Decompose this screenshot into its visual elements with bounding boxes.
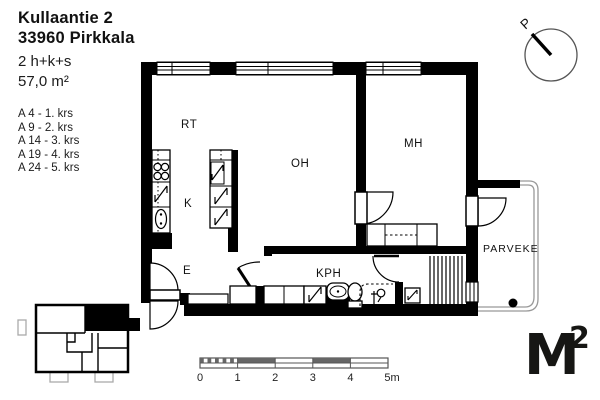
bedroom-door xyxy=(355,192,393,224)
room-label-rt: RT xyxy=(181,119,197,131)
location-keymap xyxy=(18,305,140,382)
shower xyxy=(360,284,393,306)
compass: P xyxy=(517,15,577,81)
m2-logo: M 2 xyxy=(524,326,596,392)
bathroom-cabinets xyxy=(264,286,326,304)
sauna-stove xyxy=(405,288,420,303)
scale-tick: 0 xyxy=(197,372,203,384)
scale-tick: 5m xyxy=(384,372,399,384)
sauna-window xyxy=(466,282,478,302)
north-needle xyxy=(532,34,551,55)
scale-tick: 4 xyxy=(347,372,353,384)
bedroom-wardrobes xyxy=(367,224,437,246)
room-label-parveke: PARVEKE xyxy=(483,243,539,255)
room-label-kph: KPH xyxy=(316,268,341,280)
room-label-mh: MH xyxy=(404,138,423,150)
floor-plan-drawing: RT K OH MH E KPH PARVEKE P xyxy=(0,0,600,400)
washbasin xyxy=(327,283,349,300)
scale-tick: 3 xyxy=(310,372,316,384)
balcony-door xyxy=(466,196,506,226)
room-label-oh: OH xyxy=(291,158,309,170)
room-label-e: E xyxy=(183,265,191,277)
hall-bench xyxy=(188,294,228,304)
front-door xyxy=(150,263,180,329)
scale-tick: 1 xyxy=(235,372,241,384)
north-label: P xyxy=(517,15,534,32)
logo-sup: 2 xyxy=(569,324,590,354)
keymap-highlighted-apartment xyxy=(85,305,140,331)
room-label-k: K xyxy=(184,198,192,210)
balcony-drain xyxy=(509,299,518,308)
scale-bar: 0 1 2 3 4 5m xyxy=(197,358,400,384)
kitchen-sink xyxy=(156,210,167,229)
scale-tick: 2 xyxy=(272,372,278,384)
sauna-benches xyxy=(430,256,462,306)
wardrobe xyxy=(230,286,256,304)
floor-plan-sheet: Kullaantie 2 33960 Pirkkala 2 h+k+s 57,0… xyxy=(0,0,600,400)
sauna-door xyxy=(373,254,403,282)
fridge-cabinet xyxy=(210,150,238,228)
